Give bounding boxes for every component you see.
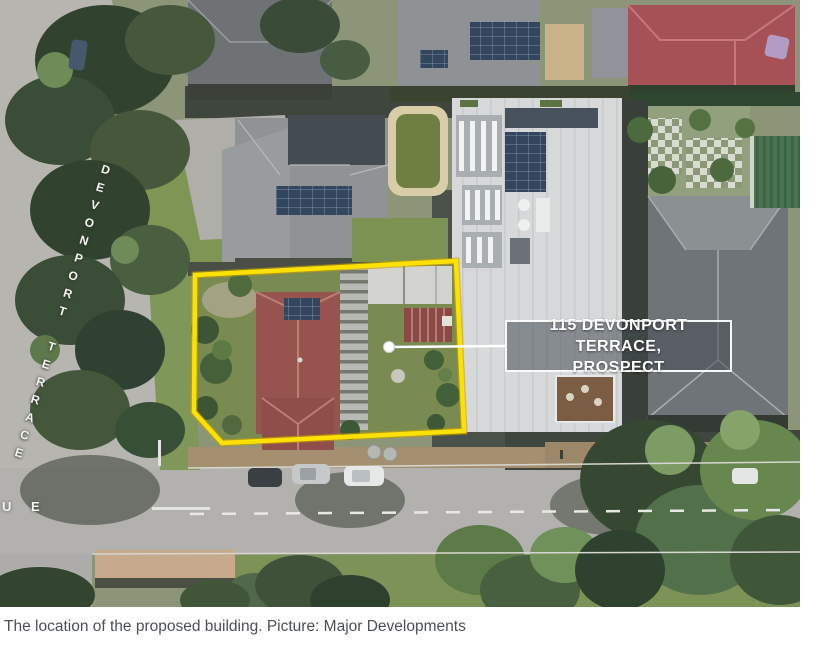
- article-figure: DEVONPORT TERRACE U E 115 DEVONPORT TERR…: [0, 0, 819, 660]
- aerial-photo-art: [0, 0, 800, 607]
- green-roof-right: [750, 136, 800, 208]
- callout-line2: PROSPECT: [572, 357, 664, 378]
- neighbour-houses-top: [160, 0, 800, 106]
- callout-dot: [384, 342, 395, 353]
- callout-leader-line: [391, 346, 506, 347]
- development-building: [452, 98, 648, 432]
- photo-caption: The location of the proposed building. P…: [4, 617, 819, 637]
- property-callout-label: 115 DEVONPORT TERRACE, PROSPECT: [505, 320, 732, 372]
- aerial-photo: DEVONPORT TERRACE U E 115 DEVONPORT TERR…: [0, 0, 800, 607]
- callout-line1: 115 DEVONPORT TERRACE,: [507, 315, 730, 357]
- street-label-partial: U E: [2, 499, 48, 514]
